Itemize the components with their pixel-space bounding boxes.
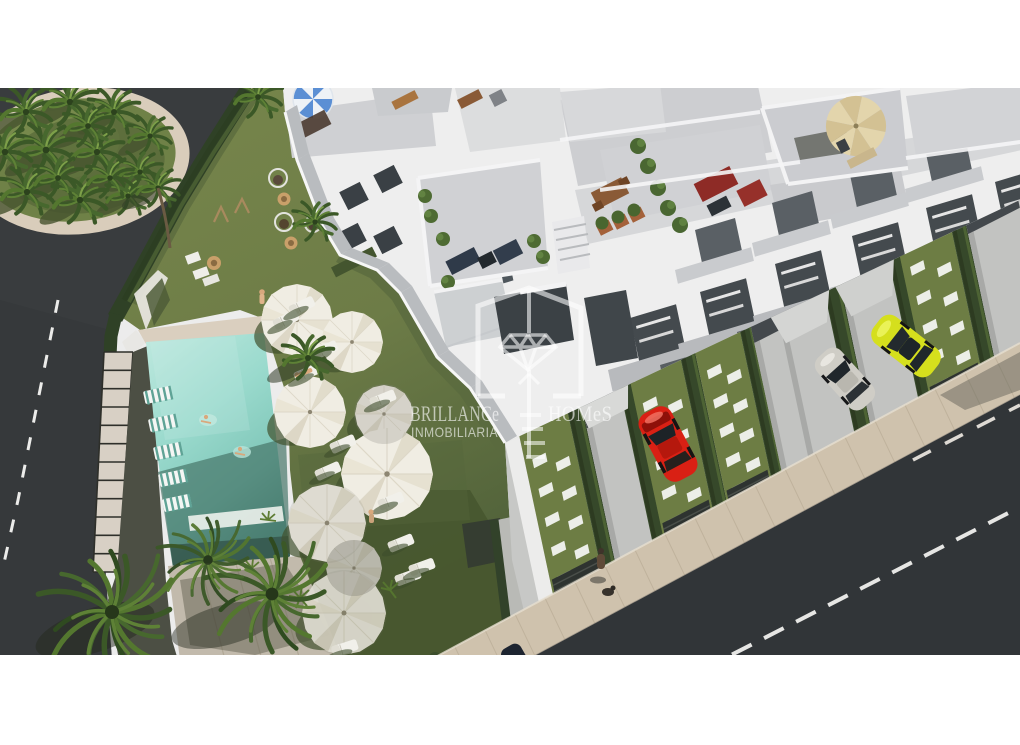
svg-text:INMOBILIARIA: INMOBILIARIA [411, 424, 498, 440]
svg-text:HOMeS: HOMeS [548, 403, 612, 427]
svg-text:BRILLANCe: BRILLANCe [410, 403, 499, 427]
